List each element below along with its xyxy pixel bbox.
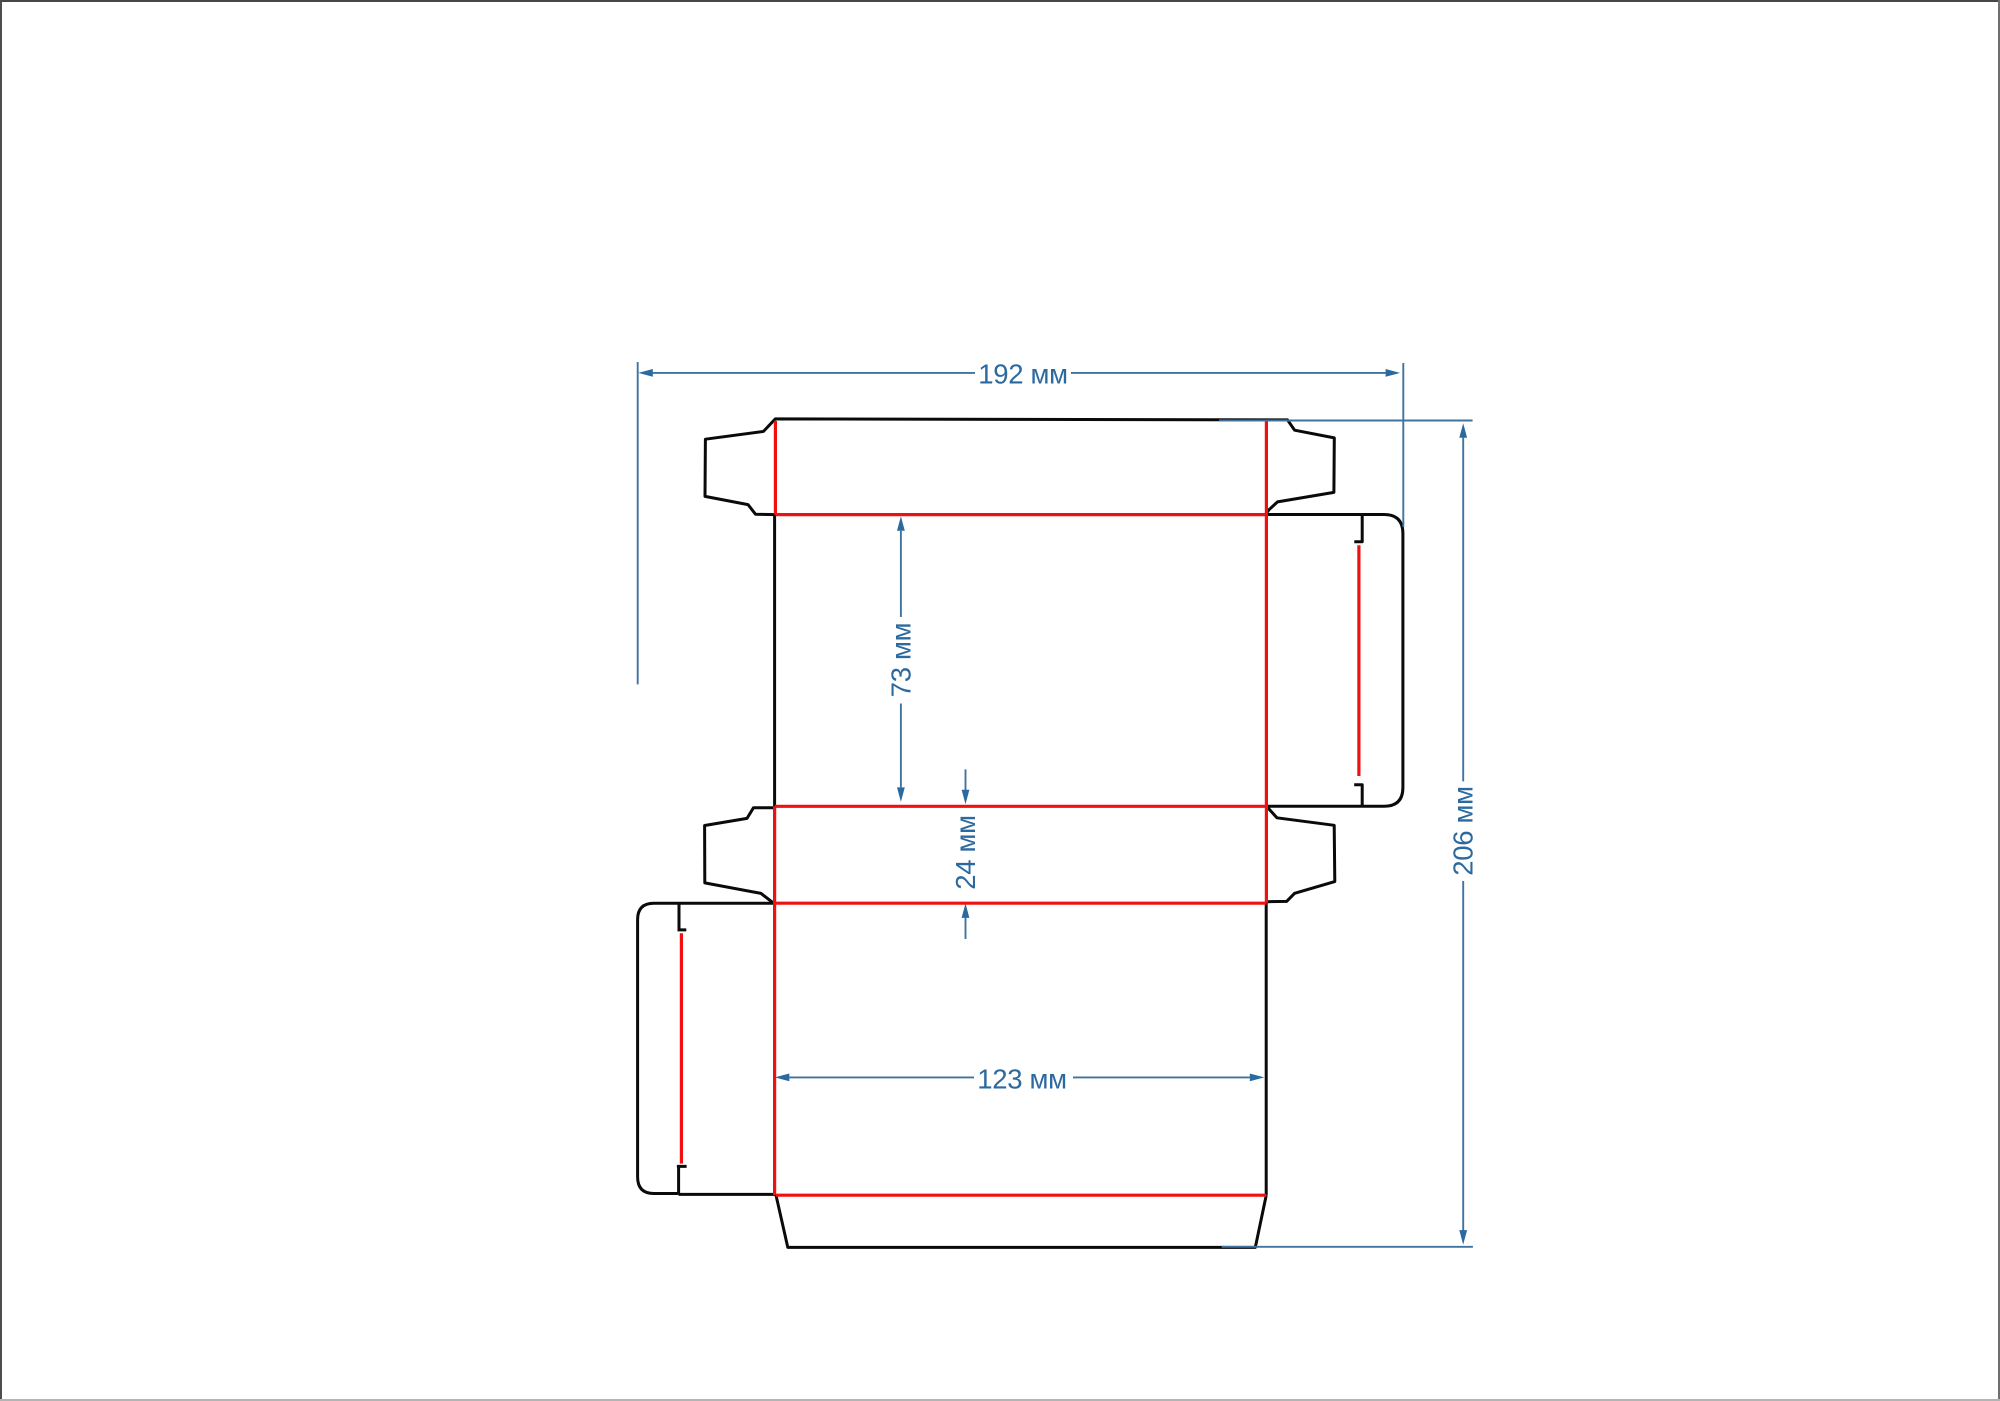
svg-text:206 мм: 206 мм — [1448, 786, 1479, 876]
svg-text:123 мм: 123 мм — [977, 1064, 1067, 1095]
svg-text:73 мм: 73 мм — [885, 623, 916, 698]
svg-text:24 мм: 24 мм — [950, 815, 981, 890]
svg-text:192 мм: 192 мм — [978, 359, 1068, 390]
